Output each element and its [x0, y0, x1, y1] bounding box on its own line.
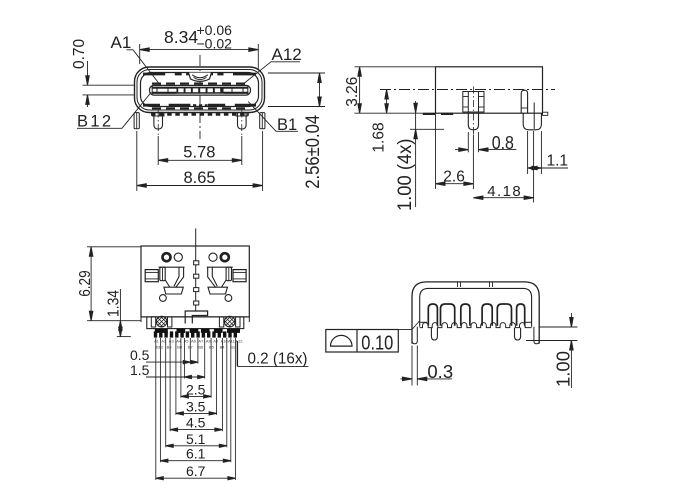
svg-text:4.18: 4.18 — [487, 183, 520, 200]
svg-text:1.1: 1.1 — [547, 153, 569, 170]
svg-text:6.7: 6.7 — [186, 463, 206, 479]
svg-text:6.29: 6.29 — [77, 270, 94, 297]
svg-text:8.65: 8.65 — [184, 169, 216, 187]
svg-text:B8: B8 — [177, 345, 183, 350]
svg-text:1.68: 1.68 — [371, 122, 388, 152]
svg-text:8.34: 8.34 — [164, 27, 198, 47]
svg-text:2.5: 2.5 — [186, 381, 206, 397]
svg-text:−0.02: −0.02 — [197, 36, 233, 52]
svg-text:B12: B12 — [77, 113, 111, 131]
svg-text:0.5: 0.5 — [130, 347, 150, 363]
svg-text:A8: A8 — [206, 339, 212, 344]
svg-text:A7: A7 — [198, 339, 204, 344]
svg-text:A12: A12 — [272, 45, 302, 64]
svg-text:A9: A9 — [213, 339, 219, 344]
svg-text:5.1: 5.1 — [186, 431, 206, 447]
svg-text:0.10: 0.10 — [361, 331, 393, 354]
svg-text:2.6: 2.6 — [443, 169, 465, 186]
svg-text:B5: B5 — [209, 345, 215, 350]
svg-text:A3: A3 — [169, 339, 175, 344]
svg-text:3.5: 3.5 — [186, 398, 206, 414]
svg-text:B12: B12 — [156, 345, 164, 350]
svg-text:0.70: 0.70 — [71, 38, 88, 69]
svg-text:1.34: 1.34 — [105, 290, 122, 317]
svg-text:0.8: 0.8 — [492, 132, 514, 153]
svg-text:1.00 (4x): 1.00 (4x) — [394, 139, 416, 212]
svg-text:B6: B6 — [198, 345, 204, 350]
svg-text:A12: A12 — [235, 339, 243, 344]
svg-text:0.2 (16x): 0.2 (16x) — [248, 351, 308, 368]
svg-text:3.26: 3.26 — [344, 77, 361, 107]
svg-text:1.00: 1.00 — [552, 351, 573, 387]
svg-text:A6: A6 — [191, 339, 197, 344]
svg-text:5.78: 5.78 — [183, 144, 215, 162]
svg-text:A1: A1 — [154, 339, 160, 344]
svg-text:A2: A2 — [161, 339, 167, 344]
svg-text:2.56±0.04: 2.56±0.04 — [302, 115, 324, 189]
svg-text:A1: A1 — [111, 33, 132, 52]
svg-text:4.5: 4.5 — [186, 415, 206, 431]
svg-text:1.5: 1.5 — [130, 362, 150, 378]
svg-text:B9: B9 — [167, 345, 173, 350]
svg-text:0.3: 0.3 — [427, 361, 453, 382]
svg-text:6.1: 6.1 — [186, 446, 206, 462]
